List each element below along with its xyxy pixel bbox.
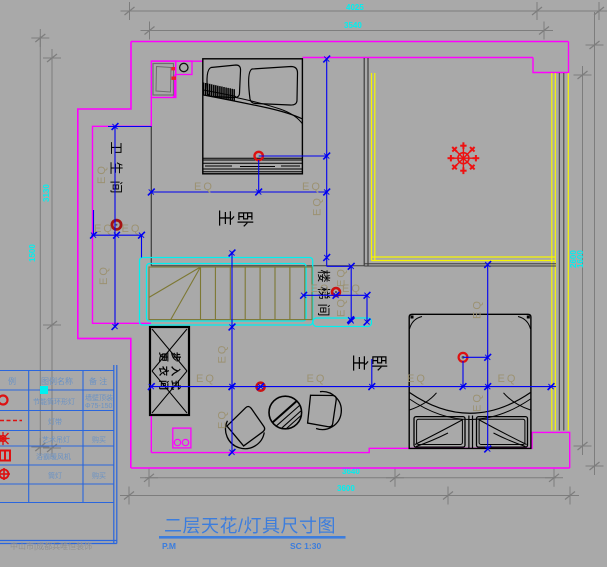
svg-text:卫: 卫 (109, 141, 124, 154)
svg-text:艺术吊灯: 艺术吊灯 (42, 435, 70, 444)
svg-text:入: 入 (169, 366, 181, 376)
svg-text:筒灯: 筒灯 (48, 471, 62, 480)
svg-text:例: 例 (8, 376, 16, 386)
svg-text:EQ: EQ (122, 223, 142, 235)
svg-text:生: 生 (109, 161, 124, 174)
svg-text:EQ: EQ (307, 373, 327, 385)
svg-text:3130: 3130 (42, 184, 51, 202)
svg-text:卧: 卧 (235, 211, 254, 228)
svg-text:二层天花/灯具尺寸图: 二层天花/灯具尺寸图 (164, 516, 336, 536)
svg-text:EQ: EQ (217, 344, 229, 364)
svg-text:1500: 1500 (28, 244, 37, 262)
svg-text:EQ: EQ (498, 373, 518, 385)
svg-text:Φ75-150: Φ75-150 (85, 403, 112, 410)
svg-text:灯带: 灯带 (48, 417, 62, 426)
svg-text:间: 间 (109, 180, 124, 193)
svg-text:1600: 1600 (576, 250, 585, 268)
svg-text:间: 间 (157, 380, 170, 390)
svg-text:间: 间 (316, 303, 331, 316)
svg-text:图例名称: 图例名称 (41, 376, 73, 386)
svg-text:EQ: EQ (98, 265, 110, 285)
svg-text:EQ: EQ (336, 297, 348, 317)
svg-text:EQ: EQ (407, 373, 427, 385)
svg-text:EQ: EQ (312, 196, 324, 216)
svg-text:更: 更 (157, 352, 169, 363)
svg-text:衣: 衣 (157, 366, 170, 376)
svg-text:购买: 购买 (92, 471, 106, 480)
svg-text:EQ: EQ (94, 223, 114, 235)
svg-text:购买: 购买 (92, 435, 106, 444)
svg-text:中山市|成都兵唯恒装饰: 中山市|成都兵唯恒装饰 (10, 541, 92, 551)
svg-text:EQ: EQ (217, 409, 229, 429)
svg-text:浴霸暖风机: 浴霸暖风机 (36, 452, 71, 461)
svg-text:主: 主 (216, 210, 235, 227)
svg-text:EQ: EQ (302, 181, 322, 193)
svg-text:楼: 楼 (316, 269, 331, 282)
svg-text:EQ: EQ (472, 392, 484, 412)
svg-text:EQ: EQ (196, 373, 216, 385)
svg-text:3540: 3540 (344, 21, 362, 30)
svg-text:备 注: 备 注 (89, 376, 107, 386)
svg-text:主: 主 (350, 355, 369, 372)
svg-text:SC 1:30: SC 1:30 (290, 541, 321, 551)
svg-text:EQ: EQ (472, 299, 484, 319)
svg-text:P.M: P.M (162, 541, 176, 551)
svg-text:节能筒环形灯: 节能筒环形灯 (33, 397, 75, 406)
svg-text:式: 式 (169, 380, 182, 390)
svg-text:EQ: EQ (96, 164, 108, 184)
svg-text:EQ: EQ (194, 181, 214, 193)
svg-text:4025: 4025 (346, 3, 364, 12)
svg-text:3600: 3600 (337, 484, 355, 493)
svg-text:墙壁顶装: 墙壁顶装 (85, 393, 113, 402)
svg-text:EQ: EQ (311, 283, 331, 295)
svg-text:步: 步 (169, 352, 182, 362)
svg-text:EQ: EQ (336, 267, 348, 287)
